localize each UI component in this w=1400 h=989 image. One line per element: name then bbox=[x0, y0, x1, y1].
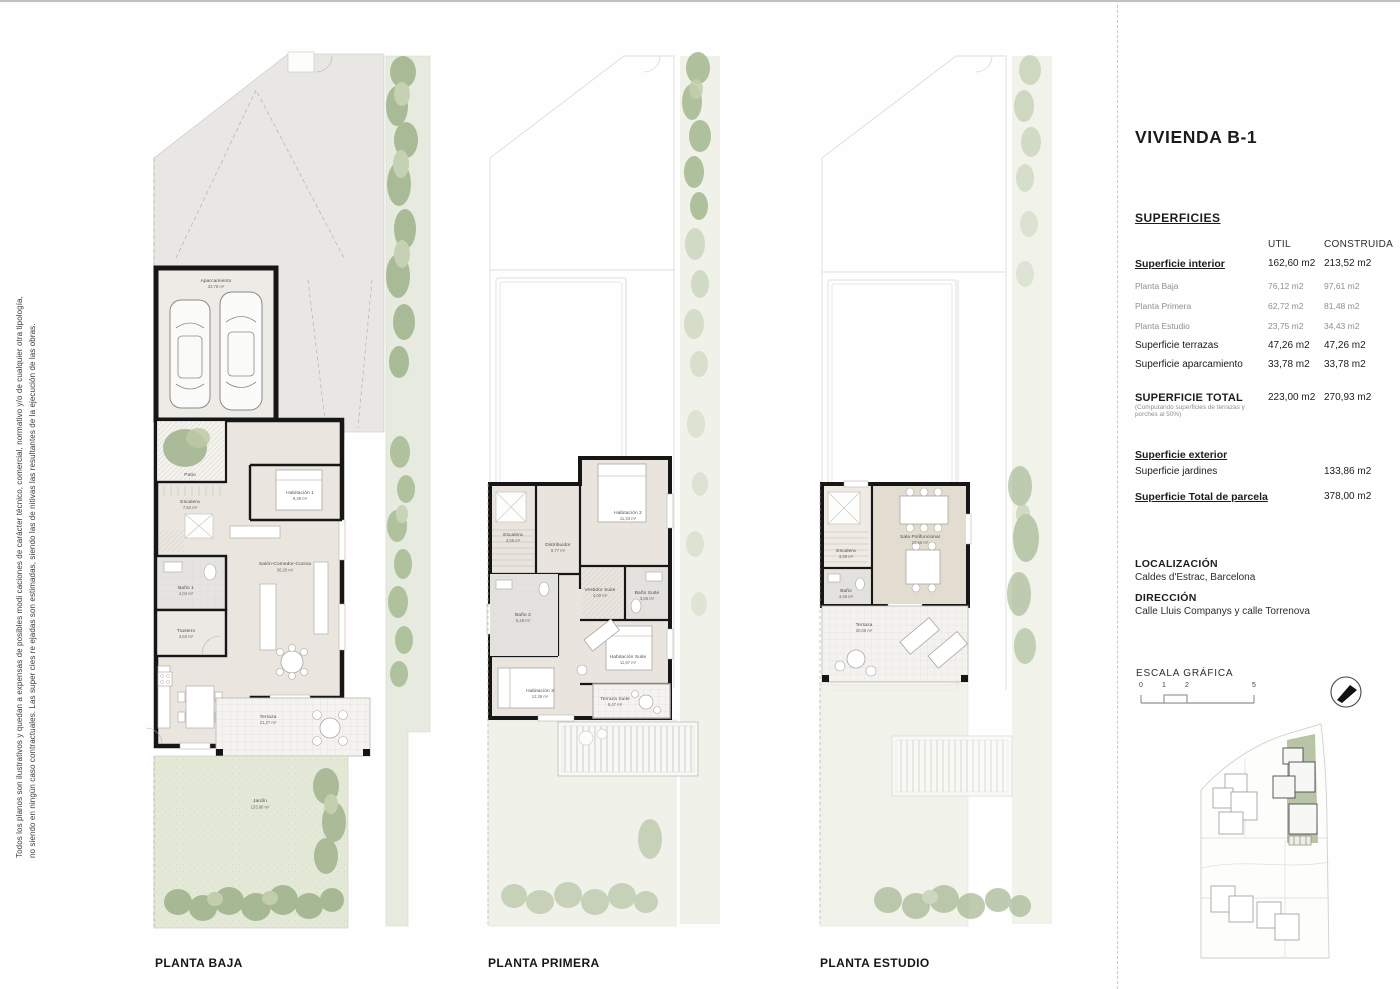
walkin-closet: Vestidor Suite 4,00 m² bbox=[582, 568, 622, 618]
row-planta-baja: Planta Baja 76,12 m2 97,61 m2 bbox=[1135, 281, 1397, 291]
room-area-escalera-pe: 3,59 m² bbox=[839, 554, 854, 559]
patio-tree-highlight bbox=[186, 428, 210, 448]
room-area-terraza-pe: 20,06 m² bbox=[856, 628, 873, 633]
double-height-hatch bbox=[158, 530, 184, 552]
room-area-habitacion3: 12,39 m² bbox=[532, 694, 549, 699]
kitchen-island bbox=[260, 584, 276, 650]
row-superficie-terrazas: Superficie terrazas 47,26 m2 47,26 m2 bbox=[1135, 340, 1397, 351]
scale-tick-5: 5 bbox=[1252, 682, 1256, 689]
room-label-salon: Salón-Comedor-Cocina bbox=[259, 561, 311, 567]
bedroom-2: Habitación 2 11,33 m² bbox=[598, 464, 646, 522]
plan-title-planta-primera: PLANTA PRIMERA bbox=[488, 956, 600, 970]
plan-title-planta-estudio: PLANTA ESTUDIO bbox=[820, 956, 930, 970]
row-superficie-total: SUPERFICIE TOTAL 223,00 m2 270,93 m2 bbox=[1135, 392, 1397, 404]
sheet-title: VIVIENDA B-1 bbox=[1135, 127, 1257, 148]
dining-table bbox=[281, 651, 303, 673]
room-area-trastero: 3,63 m² bbox=[179, 634, 194, 639]
suite-terrace: Terraza Suite 5,47 m² bbox=[593, 684, 670, 718]
row-superficie-aparcamiento: Superficie aparcamiento 33,78 m2 33,78 m… bbox=[1135, 359, 1397, 370]
room-area-habitacion1: 9,39 m² bbox=[293, 496, 308, 501]
suite-bathroom: Baño Suite 3,86 m² bbox=[627, 568, 668, 618]
pergola bbox=[558, 722, 698, 776]
column-header-construida: CONSTRUIDA bbox=[1324, 239, 1393, 250]
room-area-salon: 36,26 m² bbox=[277, 568, 294, 573]
floor-plan-planta-baja: Aparcamiento 33,78 m² Acceso bbox=[140, 44, 440, 944]
localizacion-value: Caldes d'Estrac, Barcelona bbox=[1135, 572, 1255, 583]
row-planta-estudio: Planta Estudio 23,75 m2 34,43 m2 bbox=[1135, 321, 1397, 331]
direccion-value: Calle Lluis Companys y calle Torrenova bbox=[1135, 606, 1310, 617]
room-area-escalera-p1: 3,55 m² bbox=[506, 538, 521, 543]
column-header-util: UTIL bbox=[1268, 239, 1291, 250]
room-area-habitacionsuite: 11,87 m² bbox=[620, 660, 637, 665]
room-area-terrazasuite: 5,47 m² bbox=[608, 702, 623, 707]
escala-grafica-heading: ESCALA GRÁFICA bbox=[1136, 668, 1233, 679]
localizacion-heading: LOCALIZACIÓN bbox=[1135, 558, 1218, 570]
row-superficie-jardines: Superficie jardines 133,86 m2 bbox=[1135, 466, 1397, 477]
terrace-table bbox=[320, 718, 340, 738]
terrace-pb: Terraza 21,27 m² bbox=[216, 698, 370, 756]
row-superficie-parcela: Superficie Total de parcela 378,00 m2 bbox=[1135, 491, 1397, 503]
sofa bbox=[314, 562, 328, 634]
direccion-heading: DIRECCIÓN bbox=[1135, 592, 1197, 604]
storage-room: Trastero 3,63 m² bbox=[156, 610, 226, 656]
room-area-bano1: 4,04 m² bbox=[179, 591, 194, 596]
car-1 bbox=[170, 300, 210, 408]
plan-sheet: Todos los planos son ilustrativos y qued… bbox=[0, 0, 1400, 989]
scale-tick-0: 0 bbox=[1139, 682, 1143, 689]
scale-bar-drawing bbox=[1136, 692, 1266, 706]
floor-plan-planta-estudio: Escalera 3,59 m² Baño 3,46 m² S bbox=[808, 44, 1058, 944]
plan-title-planta-baja: PLANTA BAJA bbox=[155, 956, 243, 970]
row-superficie-exterior: Superficie exterior bbox=[1135, 449, 1397, 461]
room-area-escalera-pb: 7,52 m² bbox=[183, 505, 198, 510]
garden: Jardín 133,86 m² bbox=[146, 728, 348, 928]
room-area-vestidor: 4,00 m² bbox=[593, 593, 608, 598]
room-area-habitacion2: 11,33 m² bbox=[620, 516, 637, 521]
room-area-bano2: 5,49 m² bbox=[516, 618, 531, 623]
room-label-jardin: Jardín bbox=[253, 798, 267, 804]
bed-1 bbox=[276, 470, 322, 510]
terrace-table bbox=[847, 650, 865, 668]
row-planta-primera: Planta Primera 62,72 m2 81,48 m2 bbox=[1135, 301, 1397, 311]
breakfast-table bbox=[186, 686, 214, 728]
square-table bbox=[906, 550, 940, 584]
multipurpose-room: Sala Polifuncional 19,56 m² bbox=[874, 486, 966, 604]
room-area-distribuidor: 6,77 m² bbox=[551, 548, 566, 553]
car-2 bbox=[220, 292, 262, 410]
meeting-table bbox=[900, 496, 948, 524]
room-area-sala: 19,56 m² bbox=[912, 540, 929, 545]
highlighted-parcel-hatch bbox=[1289, 836, 1311, 845]
disclaimer-line-2: no siendo en ningún caso contractuales. … bbox=[27, 146, 40, 858]
site-key-plan bbox=[1185, 718, 1395, 986]
panel-divider-dashed-line bbox=[1117, 0, 1118, 989]
toilet bbox=[204, 564, 216, 580]
floor-plan-planta-primera: Escalera 3,55 m² Distribuidor 6,77 m² Ha… bbox=[478, 44, 728, 944]
sheet-top-border bbox=[0, 0, 1400, 2]
superficies-heading: SUPERFICIES bbox=[1135, 211, 1221, 225]
sink bbox=[164, 562, 182, 572]
room-area-jardin: 133,86 m² bbox=[251, 805, 270, 810]
north-arrow-icon bbox=[1328, 674, 1364, 710]
disclaimer-line-1: Todos los planos son ilustrativos y qued… bbox=[14, 146, 27, 858]
scale-tick-2: 2 bbox=[1185, 682, 1189, 689]
bedroom-3: Habitación 3 12,39 m² bbox=[498, 668, 554, 708]
row-superficie-interior: Superficie interior 162,60 m2 213,52 m2 bbox=[1135, 258, 1397, 270]
bathroom-2: Baño 2 5,49 m² bbox=[490, 574, 558, 656]
bathroom-1: Baño 1 4,04 m² bbox=[156, 556, 226, 610]
pergola-faint bbox=[892, 736, 1012, 796]
vertical-disclaimer: Todos los planos son ilustrativos y qued… bbox=[14, 146, 39, 858]
bathroom: Baño 3,46 m² bbox=[824, 570, 870, 604]
total-note: (Computando superficies de terrazas y po… bbox=[1135, 404, 1260, 418]
graphic-scale-bar: 0 1 2 5 bbox=[1136, 682, 1266, 706]
room-label-patio: Patio bbox=[184, 472, 196, 478]
entrance-notch bbox=[288, 52, 314, 72]
kitchen-counter bbox=[230, 526, 280, 538]
room-area-aparcamiento: 33,78 m² bbox=[208, 284, 225, 289]
room-area-terraza-pb: 21,27 m² bbox=[260, 720, 277, 725]
terrace-estudio: Terraza 20,06 m² bbox=[822, 606, 968, 682]
room-area-bano-pe: 3,46 m² bbox=[839, 594, 854, 599]
room-area-banosuite: 3,86 m² bbox=[640, 596, 655, 601]
scale-tick-1: 1 bbox=[1162, 682, 1166, 689]
